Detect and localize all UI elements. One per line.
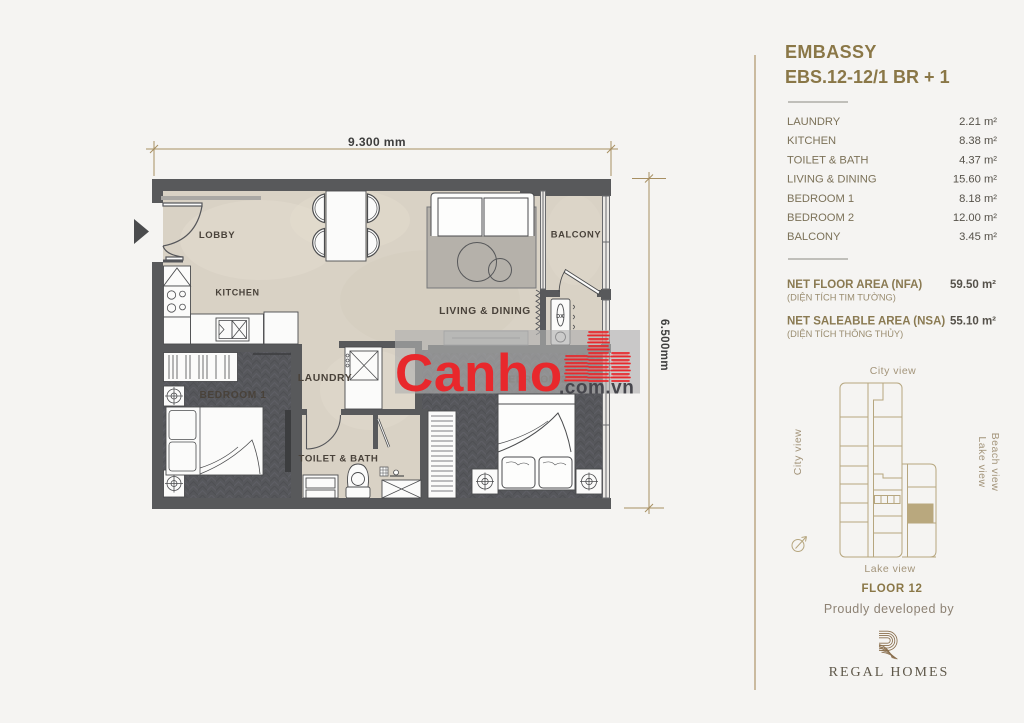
svg-text:NET FLOOR AREA (NFA): NET FLOOR AREA (NFA) bbox=[787, 279, 922, 291]
svg-text:BALCONY: BALCONY bbox=[787, 231, 841, 243]
svg-text:TOILET & BATH: TOILET & BATH bbox=[299, 454, 379, 465]
svg-text:3.45 m²: 3.45 m² bbox=[959, 231, 997, 243]
svg-text:59.50 m²: 59.50 m² bbox=[950, 279, 996, 291]
svg-text:LIVING & DINING: LIVING & DINING bbox=[439, 306, 531, 317]
svg-text:8.38 m²: 8.38 m² bbox=[959, 135, 997, 147]
svg-text:4.37 m²: 4.37 m² bbox=[959, 154, 997, 166]
svg-text:Beach view: Beach view bbox=[989, 433, 1001, 492]
svg-text:KITCHEN: KITCHEN bbox=[215, 288, 259, 298]
svg-text:BALCONY: BALCONY bbox=[551, 229, 602, 240]
svg-text:City view: City view bbox=[792, 429, 804, 476]
svg-text:55.10 m²: 55.10 m² bbox=[950, 316, 996, 328]
svg-text:BEDROOM 1: BEDROOM 1 bbox=[199, 390, 266, 401]
svg-text:BEDROOM 1: BEDROOM 1 bbox=[787, 193, 854, 205]
svg-text:LIVING & DINING: LIVING & DINING bbox=[787, 174, 877, 186]
svg-text:EBS.12-12/1 BR + 1: EBS.12-12/1 BR + 1 bbox=[785, 67, 950, 87]
svg-text:Canho: Canho bbox=[395, 344, 563, 403]
svg-text:12.00 m²: 12.00 m² bbox=[953, 212, 997, 224]
svg-text:LAUNDRY: LAUNDRY bbox=[787, 116, 841, 128]
svg-text:City view: City view bbox=[870, 365, 917, 377]
svg-text:Lake view: Lake view bbox=[864, 563, 915, 575]
svg-text:NET SALEABLE AREA (NSA): NET SALEABLE AREA (NSA) bbox=[787, 316, 945, 328]
svg-text:Proudly developed by: Proudly developed by bbox=[824, 602, 954, 616]
svg-text:(DIỆN TÍCH THÔNG THỦY): (DIỆN TÍCH THÔNG THỦY) bbox=[787, 328, 903, 339]
svg-text:2.21 m²: 2.21 m² bbox=[959, 116, 997, 128]
svg-text:REGAL HOMES: REGAL HOMES bbox=[829, 665, 950, 680]
svg-text:8.18 m²: 8.18 m² bbox=[959, 193, 997, 205]
svg-text:(DIỆN TÍCH TIM TƯỜNG): (DIỆN TÍCH TIM TƯỜNG) bbox=[787, 293, 896, 303]
svg-text:EMBASSY: EMBASSY bbox=[785, 42, 877, 62]
svg-text:DX: DX bbox=[556, 314, 564, 320]
svg-text:FLOOR 12: FLOOR 12 bbox=[861, 583, 922, 595]
svg-text:BEDROOM 2: BEDROOM 2 bbox=[787, 212, 854, 224]
svg-text:LOBBY: LOBBY bbox=[199, 230, 235, 241]
svg-text:15.60 m²: 15.60 m² bbox=[953, 174, 997, 186]
svg-text:9.300 mm: 9.300 mm bbox=[348, 135, 406, 149]
svg-text:Lake view: Lake view bbox=[976, 436, 988, 487]
svg-text:TOILET & BATH: TOILET & BATH bbox=[787, 154, 868, 166]
svg-text:6.500mm: 6.500mm bbox=[658, 319, 670, 371]
svg-text:KITCHEN: KITCHEN bbox=[787, 135, 836, 147]
svg-text:LAUNDRY: LAUNDRY bbox=[298, 373, 353, 384]
